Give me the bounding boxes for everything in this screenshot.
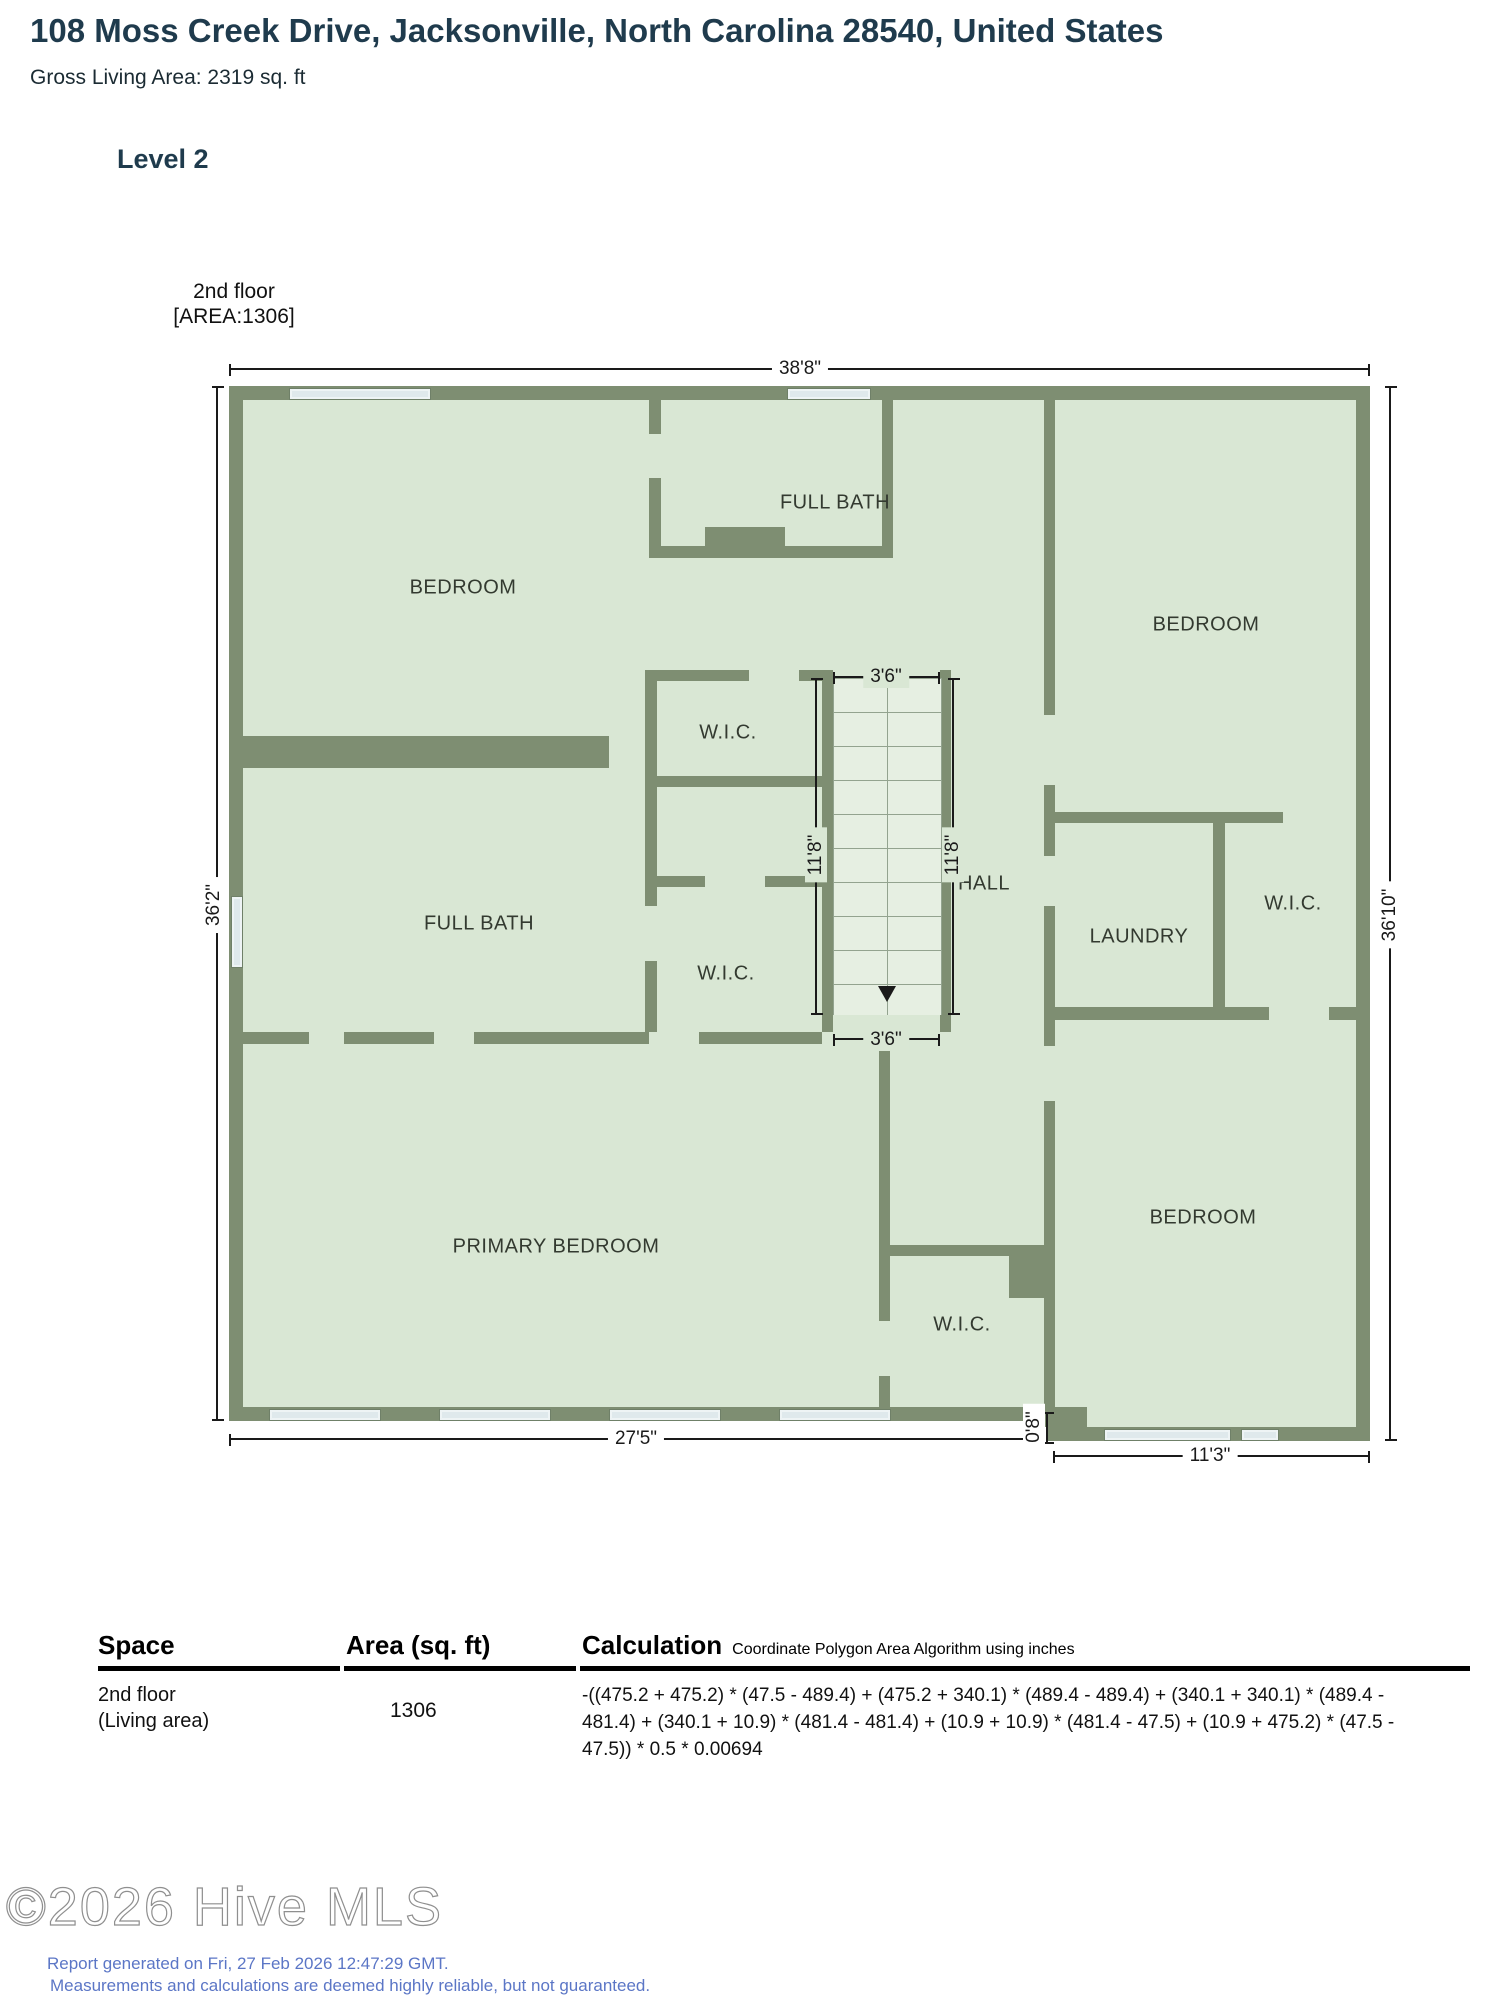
floor-plan-report-page: 108 Moss Creek Drive, Jacksonville, Nort… bbox=[0, 0, 1502, 2000]
floor-tag-name: 2nd floor bbox=[173, 279, 294, 304]
wall bbox=[649, 400, 661, 434]
wall bbox=[645, 670, 657, 790]
wall bbox=[1044, 823, 1055, 856]
staircase-center-rail bbox=[887, 678, 888, 1015]
disclaimer-text: Measurements and calculations are deemed… bbox=[50, 1976, 650, 1996]
window bbox=[779, 1409, 891, 1421]
table-cell-space: 2nd floor (Living area) bbox=[98, 1682, 209, 1734]
floor-area-tag: 2nd floor [AREA:1306] bbox=[173, 279, 294, 329]
wall bbox=[1044, 400, 1055, 715]
window bbox=[439, 1409, 551, 1421]
gross-living-area: Gross Living Area: 2319 sq. ft bbox=[30, 66, 305, 90]
stairs-down-arrow-icon bbox=[878, 986, 896, 1002]
wall bbox=[645, 961, 657, 1032]
room-label-bedroom-bottom-right: BEDROOM bbox=[1150, 1207, 1257, 1230]
dimension-bottom-left-width: 27'5" bbox=[608, 1428, 664, 1450]
wall bbox=[229, 736, 609, 768]
wall bbox=[1356, 386, 1370, 1441]
table-header-area: Area (sq. ft) bbox=[346, 1630, 490, 1661]
watermark: ©2026 Hive MLS bbox=[6, 1876, 443, 1938]
dimension-top-width: 38'8" bbox=[772, 358, 828, 380]
wall bbox=[1044, 1020, 1055, 1046]
wall bbox=[1044, 812, 1283, 823]
table-header-calculation: CalculationCoordinate Polygon Area Algor… bbox=[582, 1630, 1075, 1661]
floor-tag-area: [AREA:1306] bbox=[173, 304, 294, 329]
level-heading: Level 2 bbox=[117, 144, 209, 175]
table-cell-space-line1: 2nd floor bbox=[98, 1682, 209, 1708]
room-label-full-bath-left: FULL BATH bbox=[424, 913, 534, 936]
table-header-space: Space bbox=[98, 1630, 175, 1661]
room-label-hall: HALL bbox=[958, 873, 1010, 896]
window bbox=[289, 388, 431, 400]
window bbox=[231, 896, 243, 968]
table-header-calculation-label: Calculation bbox=[582, 1630, 722, 1660]
floor-plan: BEDROOM FULL BATH BEDROOM W.I.C. HALL FU… bbox=[229, 386, 1370, 1441]
dimension-right-height: 36'10" bbox=[1379, 882, 1401, 949]
window bbox=[1241, 1429, 1279, 1441]
wall bbox=[879, 1245, 1009, 1256]
wall bbox=[1044, 1007, 1269, 1020]
dimension-stair-width-bottom: 3'6" bbox=[863, 1029, 909, 1051]
floor-area-right-ext bbox=[1087, 1407, 1356, 1427]
room-label-wic-middle: W.I.C. bbox=[697, 963, 754, 986]
page-title: 108 Moss Creek Drive, Jacksonville, Nort… bbox=[30, 12, 1164, 50]
dimension-bottom-right-width: 11'3" bbox=[1183, 1445, 1238, 1467]
dimension-bottom-offset: 0'8" bbox=[1023, 1404, 1045, 1450]
table-header-rule bbox=[98, 1666, 1470, 1671]
room-label-wic-right: W.I.C. bbox=[1264, 893, 1321, 916]
wall bbox=[879, 1376, 890, 1407]
staircase bbox=[833, 678, 942, 1015]
window bbox=[609, 1409, 721, 1421]
dimension-line-offset bbox=[1046, 1412, 1048, 1444]
window bbox=[787, 388, 871, 400]
room-label-primary-bedroom: PRIMARY BEDROOM bbox=[453, 1236, 660, 1259]
table-cell-area: 1306 bbox=[390, 1698, 437, 1724]
wall bbox=[645, 787, 657, 906]
dimension-stair-right-height: 11'8" bbox=[942, 828, 964, 883]
wall bbox=[1213, 823, 1225, 1007]
wall bbox=[1329, 1007, 1356, 1020]
room-label-wic-upper: W.I.C. bbox=[699, 722, 756, 745]
room-label-wic-bottom: W.I.C. bbox=[933, 1314, 990, 1337]
wall bbox=[645, 670, 749, 681]
wall bbox=[699, 1032, 822, 1044]
wall bbox=[474, 1032, 649, 1044]
dimension-stair-width-top: 3'6" bbox=[863, 666, 909, 688]
table-header-calculation-note: Coordinate Polygon Area Algorithm using … bbox=[732, 1641, 1074, 1658]
room-label-full-bath-top: FULL BATH bbox=[780, 492, 890, 515]
wall bbox=[344, 1032, 434, 1044]
wall bbox=[1044, 906, 1055, 1007]
window bbox=[1104, 1429, 1231, 1441]
wall bbox=[879, 1044, 890, 1206]
room-label-bedroom-top-right: BEDROOM bbox=[1153, 614, 1260, 637]
room-label-laundry: LAUNDRY bbox=[1090, 926, 1189, 949]
dimension-left-height: 36'2" bbox=[203, 877, 225, 933]
wall bbox=[1044, 1101, 1055, 1427]
wall bbox=[645, 776, 833, 787]
table-cell-space-line2: (Living area) bbox=[98, 1708, 209, 1734]
window bbox=[269, 1409, 381, 1421]
wall bbox=[705, 527, 785, 558]
wall bbox=[229, 1032, 309, 1044]
table-cell-calculation: -((475.2 + 475.2) * (47.5 - 489.4) + (47… bbox=[582, 1682, 1474, 1763]
wall bbox=[879, 1206, 890, 1321]
dimension-stair-left-height: 11'8" bbox=[805, 828, 827, 883]
wall bbox=[882, 400, 893, 558]
room-label-bedroom-top-left: BEDROOM bbox=[410, 577, 517, 600]
report-generated-text: Report generated on Fri, 27 Feb 2026 12:… bbox=[47, 1954, 449, 1974]
wall bbox=[1009, 1245, 1044, 1298]
